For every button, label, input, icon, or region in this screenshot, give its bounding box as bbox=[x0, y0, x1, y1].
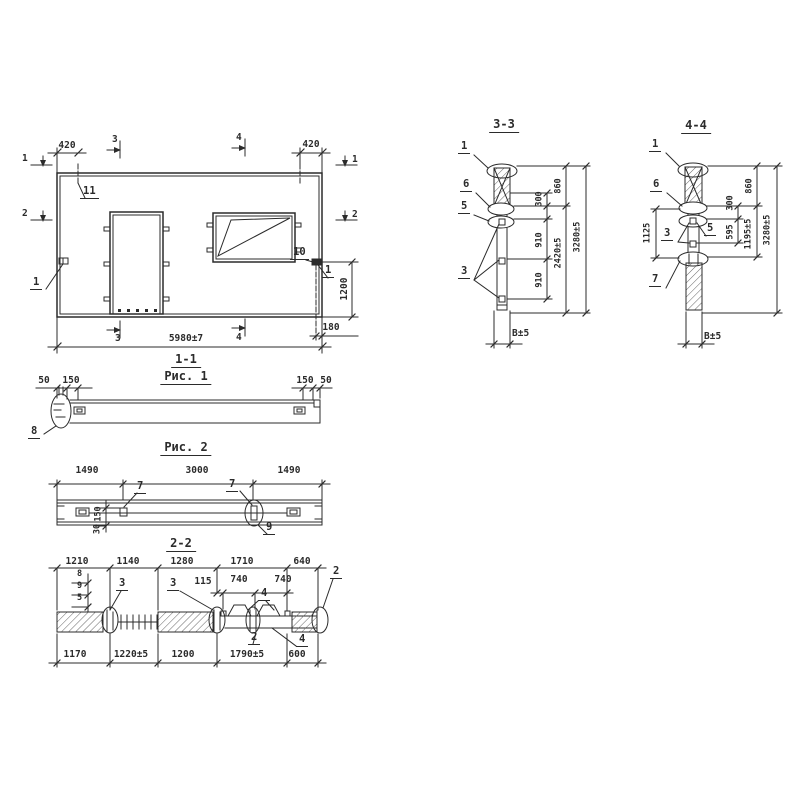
dim-44-thickness: B±5 bbox=[704, 332, 721, 342]
callout-4-bottom: 4 bbox=[296, 634, 308, 647]
callout-7-right: 7 bbox=[226, 479, 238, 492]
section-mark-4-top: 4 bbox=[236, 133, 242, 143]
rebar-label-9: 9 bbox=[77, 582, 82, 591]
callout-33-3: 3 bbox=[458, 266, 470, 279]
title-section-3-3: 3-3 bbox=[489, 118, 519, 133]
dim-30-vertical: 30 bbox=[94, 524, 103, 534]
callout-10: 10 bbox=[290, 247, 309, 260]
blueprint-svg bbox=[0, 0, 800, 800]
dim-420-right: 420 bbox=[302, 140, 319, 150]
dim-1170: 1170 bbox=[64, 650, 87, 660]
callout-8: 8 bbox=[28, 426, 40, 439]
dim-44-3280: 3280±5 bbox=[764, 215, 773, 246]
dim-420-left: 420 bbox=[58, 141, 75, 151]
dim-1200-bottom: 1200 bbox=[172, 650, 195, 660]
dim-5980: 5980±7 bbox=[169, 334, 203, 344]
section-mark-4-bottom: 4 bbox=[236, 333, 242, 343]
callout-44-6: 6 bbox=[650, 179, 662, 192]
dim-1490-right: 1490 bbox=[278, 466, 301, 476]
dim-1710: 1710 bbox=[231, 557, 254, 567]
dim-740-a: 740 bbox=[230, 575, 247, 585]
dim-33-300: 300 bbox=[536, 191, 545, 206]
callout-44-1: 1 bbox=[649, 139, 661, 152]
elevation-linework bbox=[31, 139, 358, 353]
section-mark-1-right: 1 bbox=[352, 155, 358, 165]
section-mark-2-right: 2 bbox=[352, 210, 358, 220]
figure-2-linework bbox=[49, 480, 330, 534]
callout-11: 11 bbox=[80, 186, 99, 199]
dim-1140: 1140 bbox=[117, 557, 140, 567]
dim-44-1125: 1125 bbox=[644, 223, 653, 243]
dim-150-vertical: 150 bbox=[95, 506, 104, 521]
dim-1200: 1200 bbox=[340, 278, 350, 301]
dim-3000: 3000 bbox=[186, 466, 209, 476]
title-section-4-4: 4-4 bbox=[681, 119, 711, 134]
callout-33-6: 6 bbox=[460, 179, 472, 192]
dim-44-595: 595 bbox=[727, 224, 736, 239]
rebar-label-5: 5 bbox=[77, 594, 82, 603]
dim-150-right: 150 bbox=[296, 376, 313, 386]
dim-1280: 1280 bbox=[171, 557, 194, 567]
callout-33-5: 5 bbox=[458, 201, 470, 214]
callout-2-bottom: 2 bbox=[248, 632, 260, 645]
callout-33-1: 1 bbox=[458, 141, 470, 154]
callout-1-left: 1 bbox=[30, 277, 42, 290]
dim-50-right: 50 bbox=[320, 376, 331, 386]
dim-33-910-b: 910 bbox=[536, 272, 545, 287]
callout-9: 9 bbox=[263, 522, 275, 535]
title-section-2-2: 2-2 bbox=[166, 537, 196, 552]
callout-3-left: 3 bbox=[116, 578, 128, 591]
dim-44-860: 860 bbox=[746, 178, 755, 193]
section-4-4-linework bbox=[651, 153, 782, 348]
title-section-1-1: 1-1 bbox=[171, 353, 201, 368]
caption-ris-2: Рис. 2 bbox=[160, 441, 211, 456]
callout-1-right: 1 bbox=[322, 265, 334, 278]
callout-44-5: 5 bbox=[704, 223, 716, 236]
callout-2-right: 2 bbox=[330, 566, 342, 579]
dim-33-860: 860 bbox=[555, 178, 564, 193]
callout-44-3: 3 bbox=[661, 228, 673, 241]
dim-180: 180 bbox=[322, 323, 339, 333]
section-mark-3-bottom: 3 bbox=[115, 334, 121, 344]
dim-1790: 1790±5 bbox=[230, 650, 264, 660]
rebar-label-8: 8 bbox=[77, 570, 82, 579]
section-mark-2-left: 2 bbox=[22, 209, 28, 219]
dim-600: 600 bbox=[288, 650, 305, 660]
dim-115: 115 bbox=[194, 577, 211, 587]
dim-640: 640 bbox=[293, 557, 310, 567]
dim-33-thickness: B±5 bbox=[512, 329, 529, 339]
dim-44-300: 300 bbox=[727, 195, 736, 210]
dim-150-left: 150 bbox=[62, 376, 79, 386]
dim-33-3280: 3280±5 bbox=[574, 222, 583, 253]
dim-33-910-a: 910 bbox=[536, 232, 545, 247]
callout-3-right: 3 bbox=[167, 578, 179, 591]
dim-1220: 1220±5 bbox=[114, 650, 148, 660]
caption-ris-1: Рис. 1 bbox=[160, 370, 211, 385]
callout-4-top: 4 bbox=[258, 588, 270, 601]
drawing-sheet: 420 420 3 4 1 1 2 2 11 1 10 1 1200 180 3… bbox=[0, 0, 800, 800]
dim-1210: 1210 bbox=[66, 557, 89, 567]
dim-33-2420: 2420±5 bbox=[555, 238, 564, 269]
section-mark-1-left: 1 bbox=[22, 154, 28, 164]
dim-50-left: 50 bbox=[38, 376, 49, 386]
dim-44-1195: 1195±5 bbox=[745, 219, 754, 250]
dim-1490-left: 1490 bbox=[76, 466, 99, 476]
dim-740-b: 740 bbox=[274, 575, 291, 585]
callout-44-7: 7 bbox=[649, 274, 661, 287]
callout-7-left: 7 bbox=[134, 481, 146, 494]
section-1-1-linework bbox=[36, 385, 332, 434]
section-mark-3-top: 3 bbox=[112, 135, 118, 145]
